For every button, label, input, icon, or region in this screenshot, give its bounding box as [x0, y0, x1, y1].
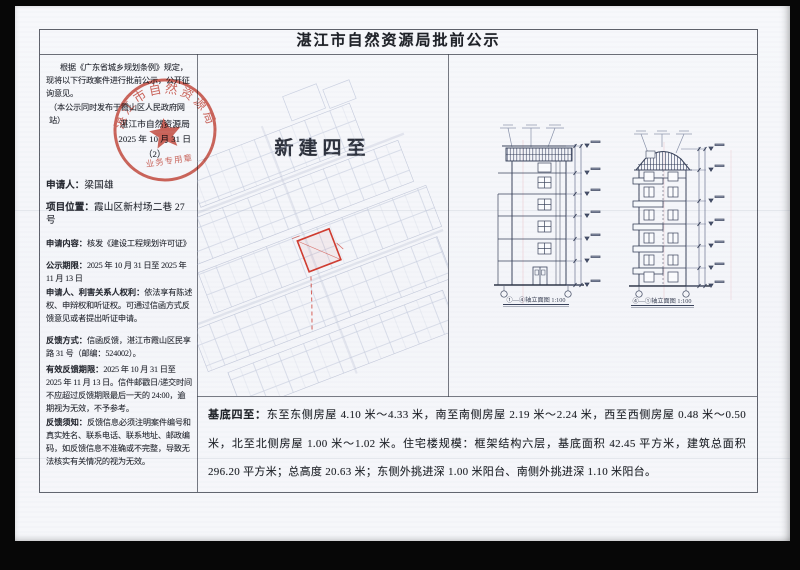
field-label: 公示期限：	[46, 261, 87, 270]
elevation-panel: ①—④轴立面图 1:100	[448, 54, 757, 397]
field-application: 申请内容：核发《建设工程规划许可证》	[40, 237, 195, 250]
field-notice-period: 公示期限：2025 年 10 月 31 日至 2025 年 11 月 13 日	[40, 259, 197, 285]
annotation-leaders	[634, 131, 692, 153]
annotation-leaders	[500, 125, 564, 147]
elevation-right-caption: ④—①轴立面图 1:100	[633, 297, 692, 305]
axis-bubble	[565, 291, 571, 297]
summary-value: 东至东侧房屋 4.10 米～4.33 米，南至南侧房屋 2.19 米～2.24 …	[208, 409, 746, 478]
field-rights: 申请人、利害关系人权利：依法享有陈述权、申辩权和听证权。可通过信函方式反馈意见或…	[40, 286, 197, 325]
axis-bubble	[683, 291, 689, 297]
level-markers	[585, 141, 600, 286]
entrance-door	[533, 267, 547, 285]
field-applicant: 申请人：梁国雄	[40, 179, 118, 192]
official-seal: 湛江市自然资源局 业务专用章	[109, 74, 221, 186]
elevation-right-drawing: ④—①轴立面图 1:100	[629, 131, 731, 308]
scanned-notice-page: 湛江市自然资源局批前公示 根据《广东省城乡规划条例》规定，现将以下行政案件进行批…	[15, 6, 790, 541]
field-value: 核发《建设工程规划许可证》	[87, 239, 191, 248]
windows	[538, 163, 551, 254]
field-label: 申请内容：	[46, 239, 87, 248]
field-label: 项目位置：	[46, 202, 94, 213]
elevation-left-caption: ①—④轴立面图 1:100	[507, 296, 566, 304]
field-label: 有效反馈期限：	[46, 365, 103, 374]
field-feedback-notes: 反馈须知：反馈信息必须注明案件编号和真实姓名、联系电话、联系地址、邮政编码，如反…	[40, 416, 197, 468]
field-feedback-method: 反馈方式：信函反馈，湛江市霞山区民享路 31 号（邮编：524002）。	[40, 334, 197, 360]
page-title: 湛江市自然资源局批前公示	[40, 30, 757, 55]
seal-bottom-text: 业务专用章	[145, 152, 193, 169]
elevation-left-drawing: ①—④轴立面图 1:100	[494, 125, 600, 307]
dimension-chain	[566, 144, 582, 285]
level-markers	[709, 144, 724, 287]
field-label: 反馈须知：	[46, 418, 87, 427]
project-summary: 基底四至：东至东侧房屋 4.10 米～4.33 米，南至南侧房屋 2.19 米～…	[197, 396, 757, 492]
field-label: 申请人：	[46, 180, 84, 191]
cadastral-sketch	[197, 54, 448, 396]
site-map-panel: 新建四至	[197, 54, 449, 397]
field-location: 项目位置：霞山区新村场二巷 27 号	[40, 201, 197, 227]
field-label: 申请人、利害关系人权利：	[46, 288, 144, 297]
project-summary-text: 基底四至：东至东侧房屋 4.10 米～4.33 米，南至南侧房屋 2.19 米～…	[197, 396, 757, 487]
summary-label: 基底四至：	[208, 409, 267, 421]
parcel-grid	[197, 60, 448, 396]
elevation-drawings: ①—④轴立面图 1:100	[448, 54, 757, 396]
field-label: 反馈方式：	[46, 336, 87, 345]
field-feedback-period: 有效反馈期限：2025 年 10 月 31 日至 2025 年 11 月 13 …	[40, 363, 197, 415]
axis-bubble	[636, 291, 642, 297]
seal-star-icon	[148, 116, 183, 150]
